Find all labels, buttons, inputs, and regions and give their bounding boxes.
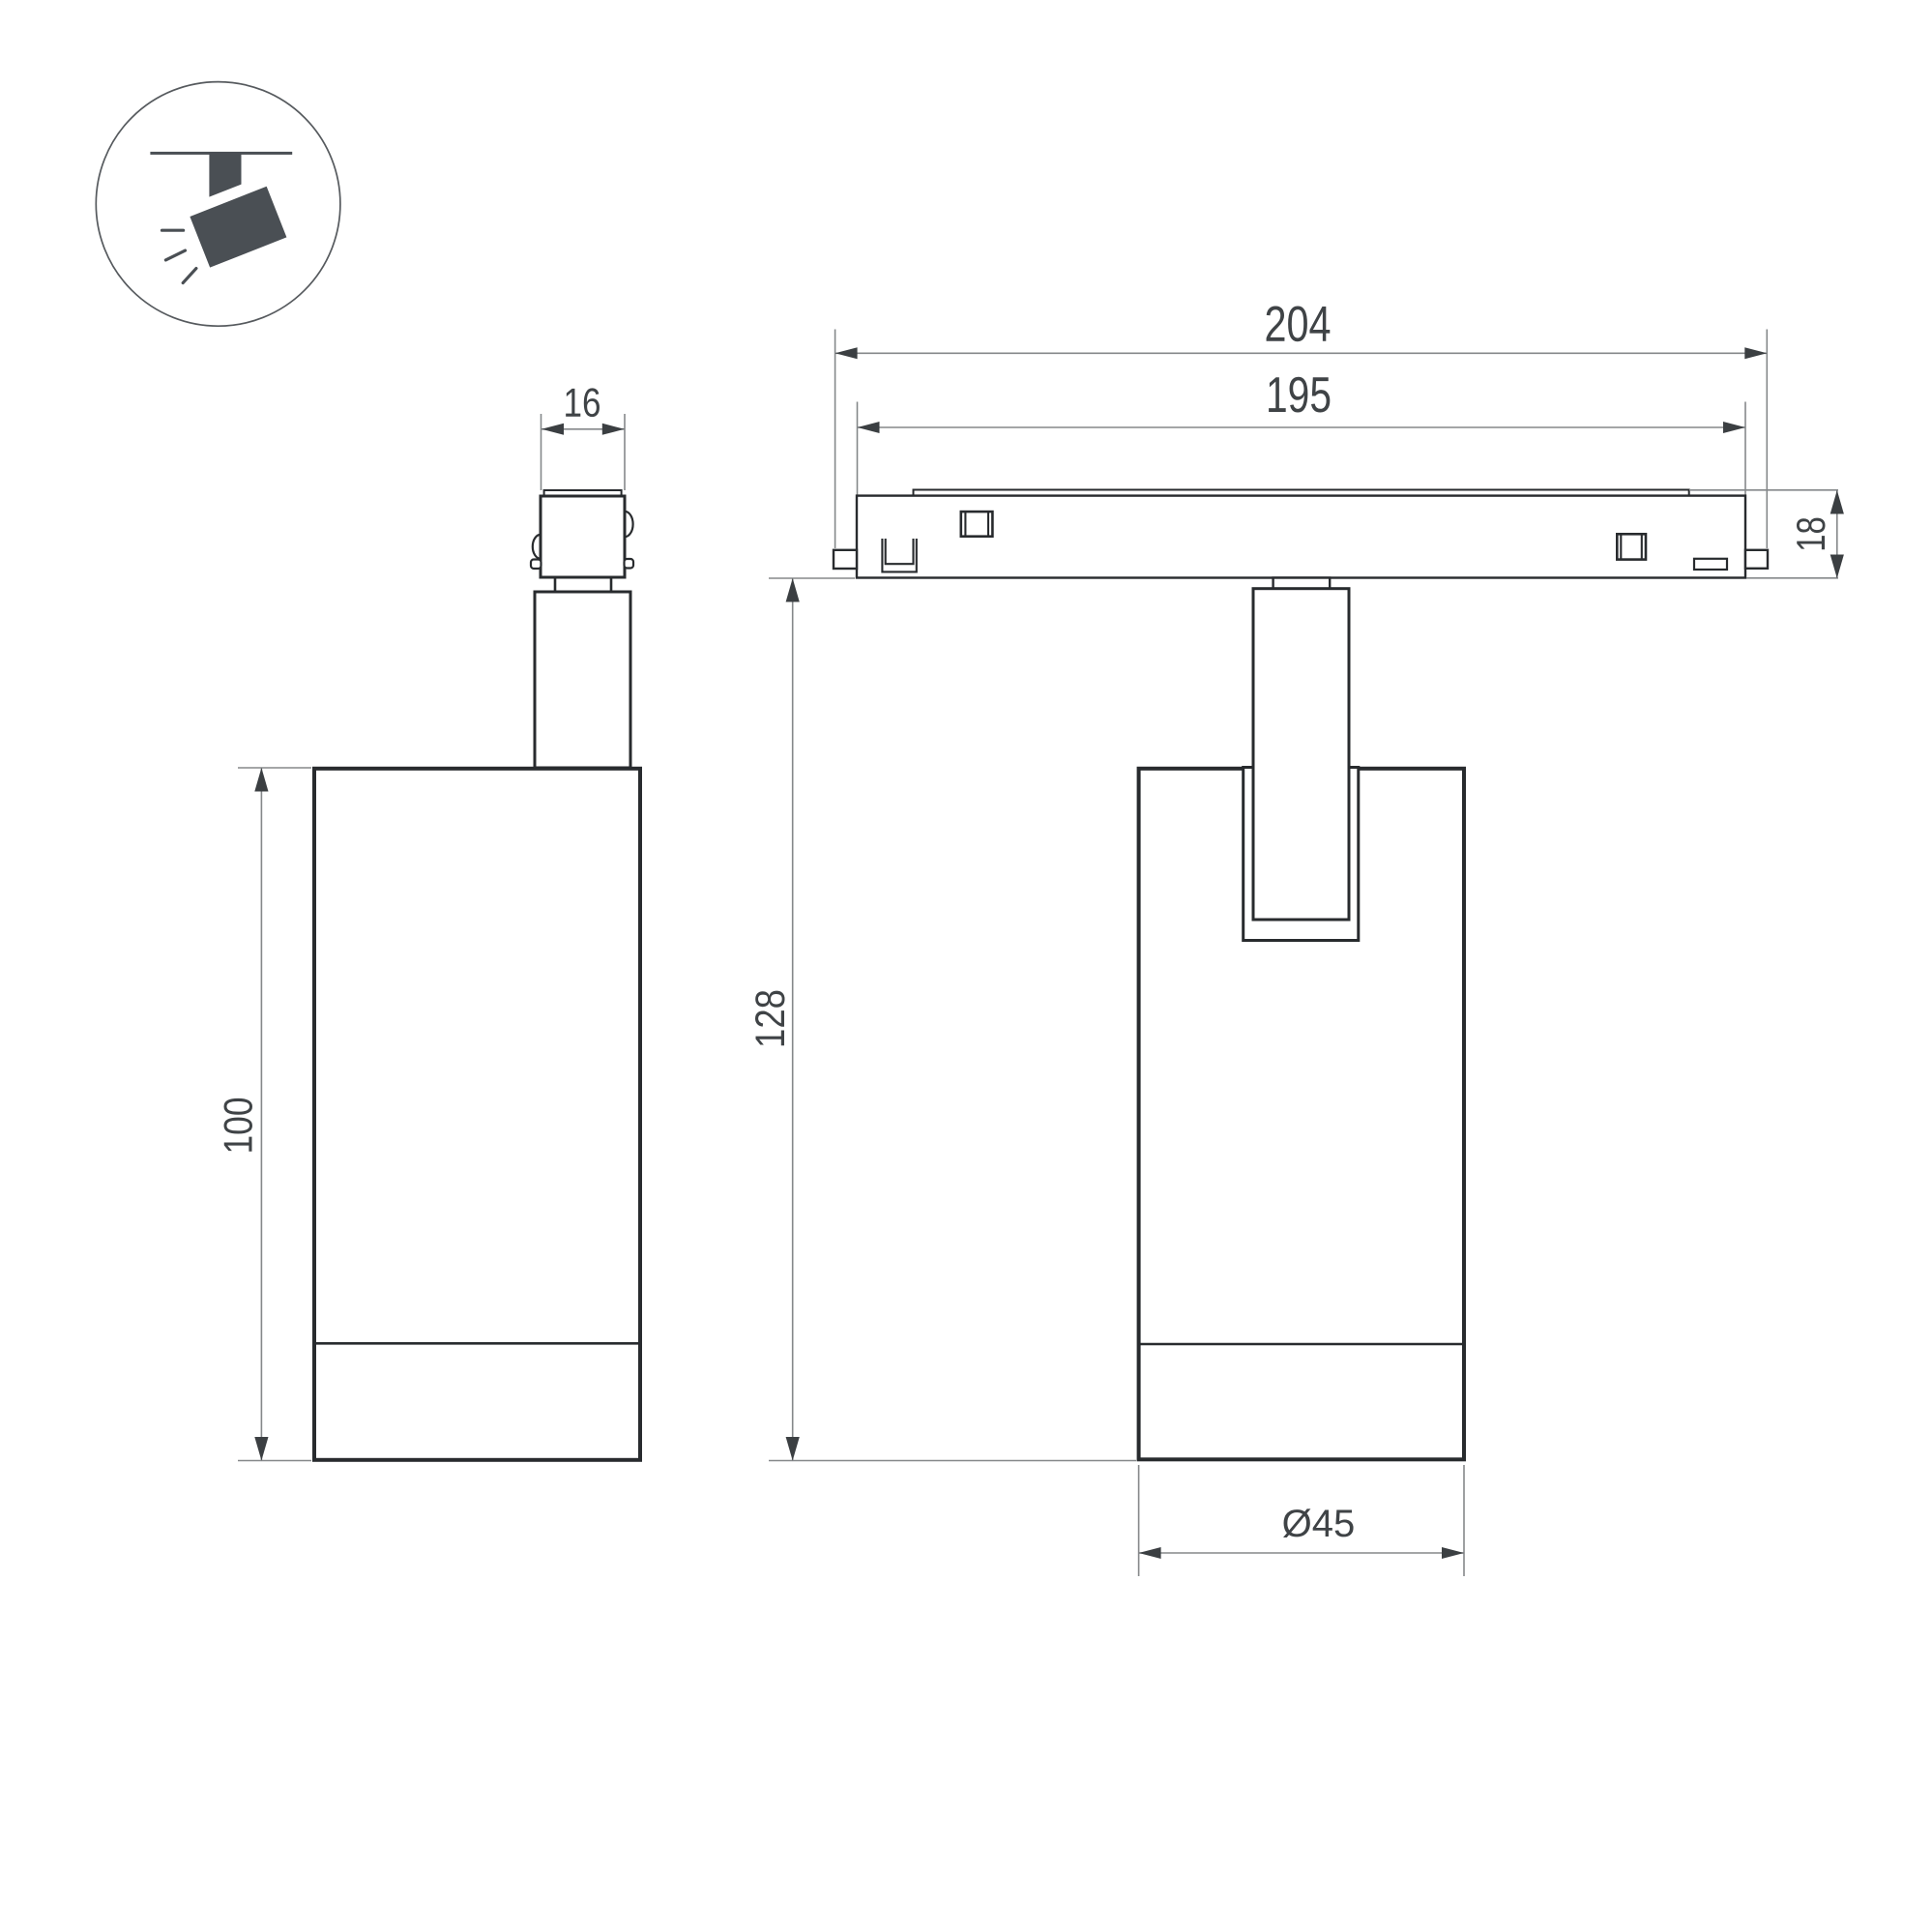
- svg-text:195: 195: [1266, 367, 1332, 424]
- svg-text:128: 128: [747, 989, 794, 1048]
- svg-text:204: 204: [1264, 297, 1331, 353]
- svg-text:Ø45: Ø45: [1282, 1503, 1356, 1545]
- svg-text:18: 18: [1788, 516, 1833, 552]
- svg-text:100: 100: [216, 1098, 261, 1155]
- svg-text:16: 16: [563, 380, 600, 425]
